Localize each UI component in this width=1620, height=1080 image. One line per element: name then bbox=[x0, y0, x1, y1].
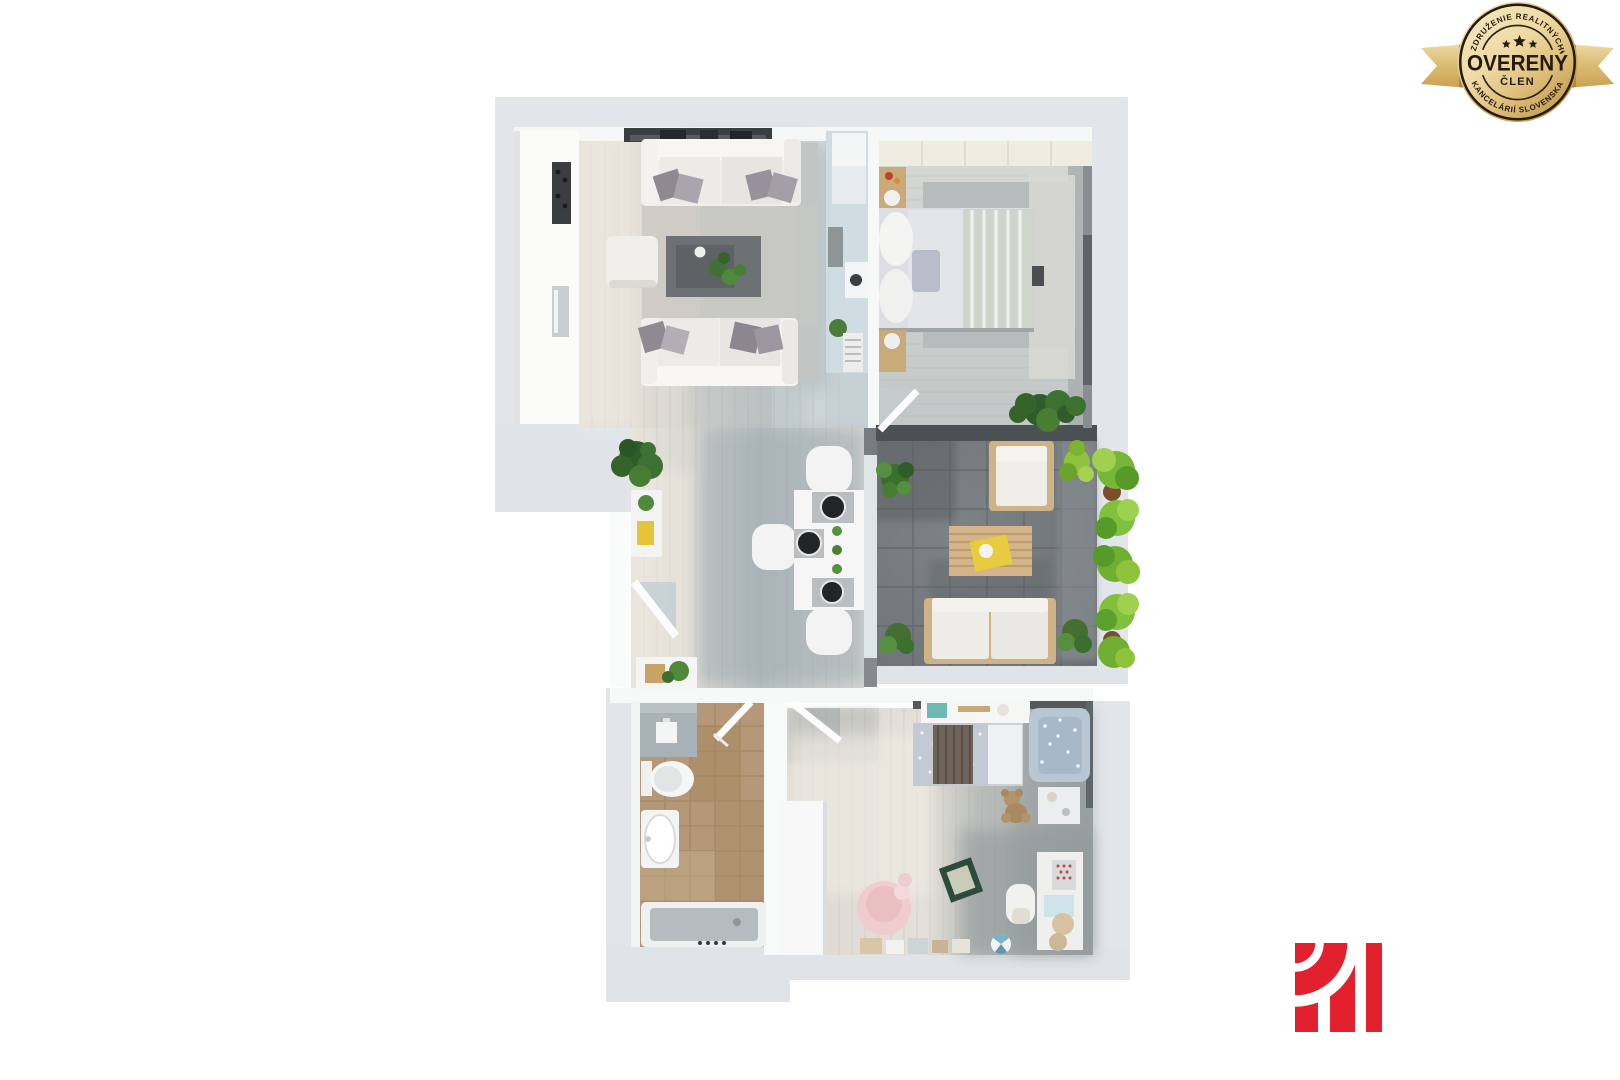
svg-text:OVERENÝ: OVERENÝ bbox=[1467, 51, 1568, 76]
svg-text:ČLEN: ČLEN bbox=[1500, 75, 1535, 88]
